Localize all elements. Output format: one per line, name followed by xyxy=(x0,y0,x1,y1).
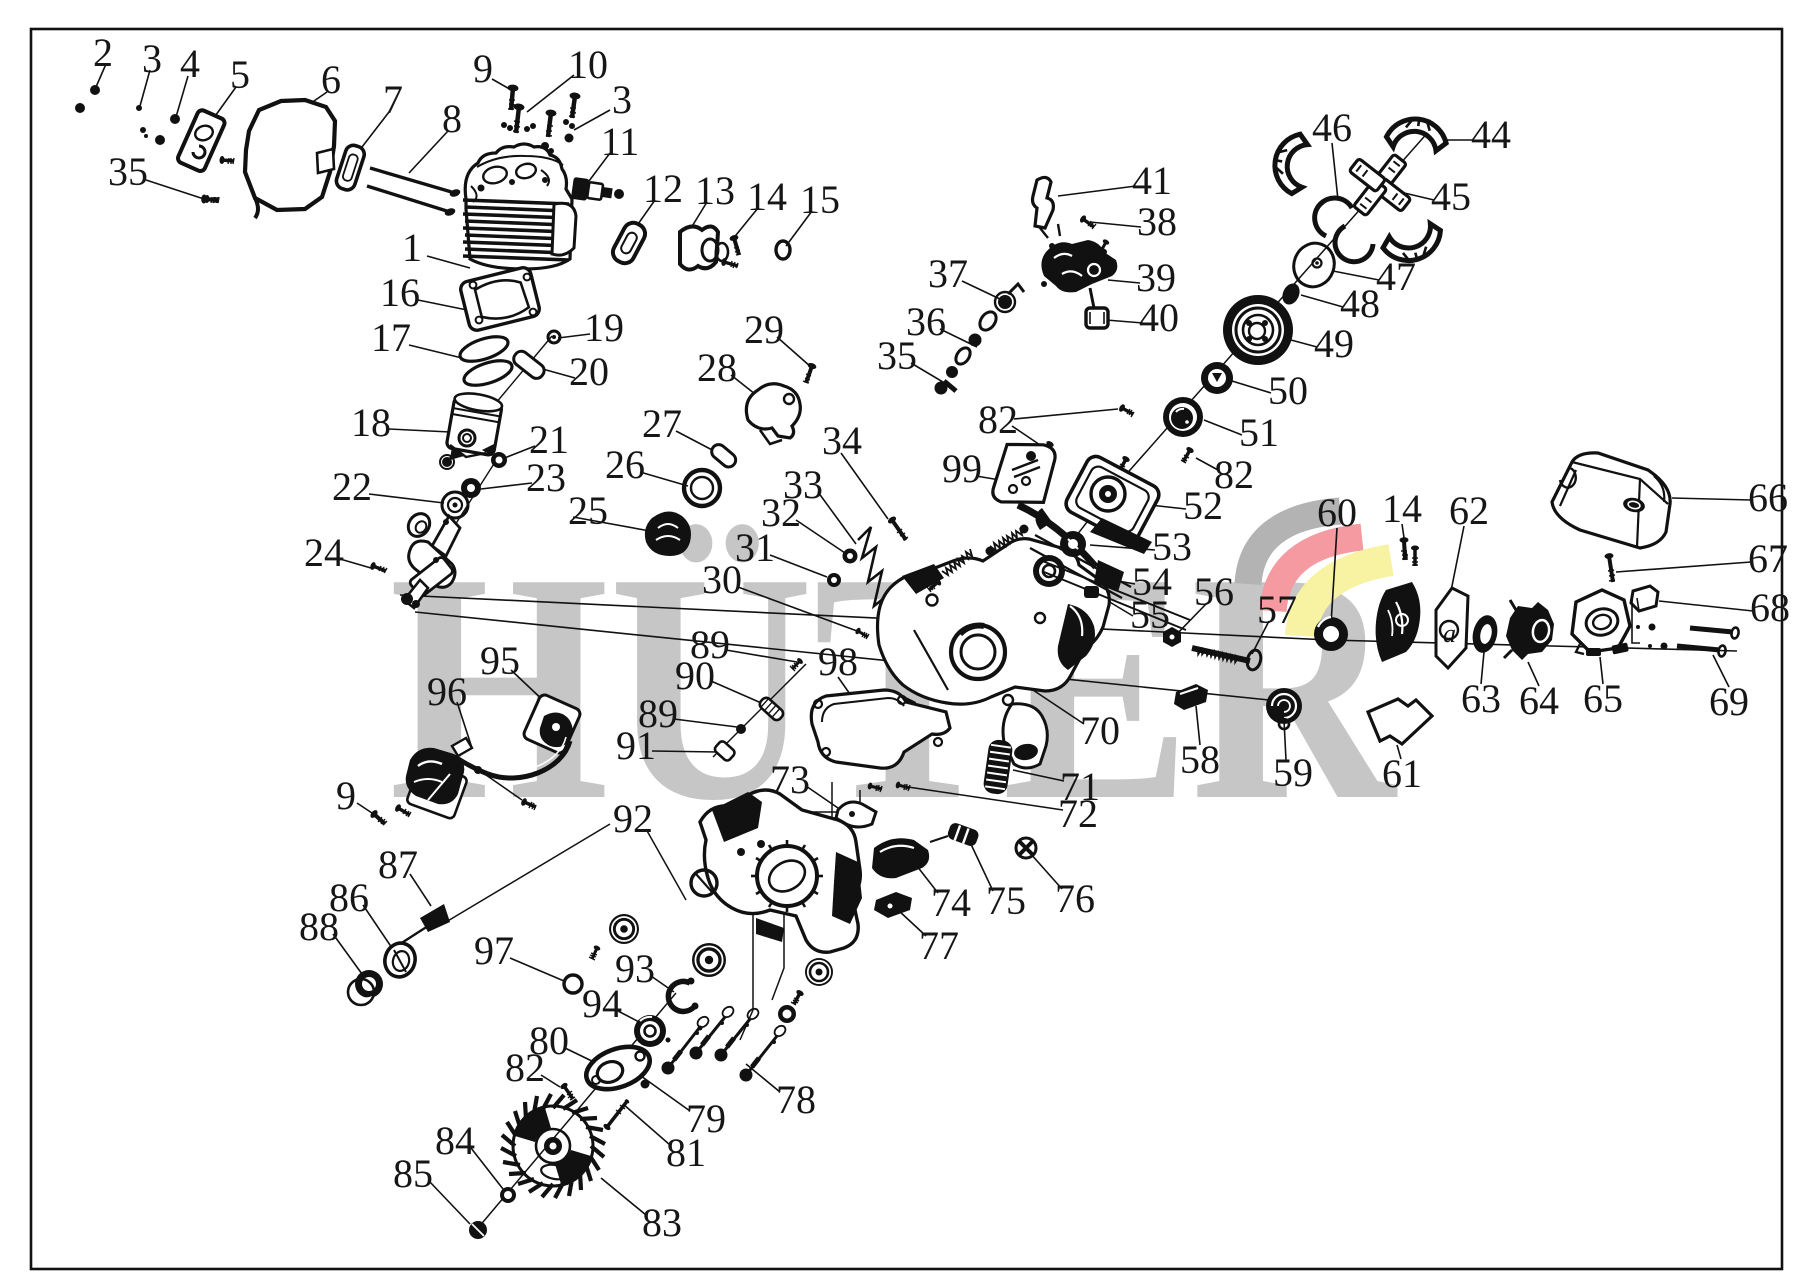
svg-text:48: 48 xyxy=(1340,281,1380,326)
svg-text:35: 35 xyxy=(877,333,917,378)
svg-text:29: 29 xyxy=(744,307,784,352)
svg-text:27: 27 xyxy=(642,401,682,446)
svg-text:25: 25 xyxy=(568,488,608,533)
svg-text:1: 1 xyxy=(402,225,422,270)
svg-text:38: 38 xyxy=(1137,199,1177,244)
svg-text:44: 44 xyxy=(1471,112,1511,157)
svg-text:3: 3 xyxy=(142,36,162,81)
svg-text:72: 72 xyxy=(1058,791,1098,836)
svg-text:84: 84 xyxy=(435,1118,475,1163)
svg-text:95: 95 xyxy=(480,638,520,683)
svg-text:87: 87 xyxy=(378,842,418,887)
svg-text:4: 4 xyxy=(180,41,200,86)
svg-text:75: 75 xyxy=(986,878,1026,923)
svg-text:8: 8 xyxy=(442,96,462,141)
svg-text:39: 39 xyxy=(1136,255,1176,300)
svg-text:49: 49 xyxy=(1314,321,1354,366)
svg-text:30: 30 xyxy=(702,557,742,602)
svg-text:92: 92 xyxy=(613,796,653,841)
svg-text:61: 61 xyxy=(1382,751,1422,796)
svg-text:66: 66 xyxy=(1748,475,1788,520)
svg-text:52: 52 xyxy=(1183,483,1223,528)
svg-text:73: 73 xyxy=(770,757,810,802)
svg-text:24: 24 xyxy=(304,530,344,575)
svg-text:9: 9 xyxy=(336,773,356,818)
svg-text:70: 70 xyxy=(1080,708,1120,753)
svg-text:82: 82 xyxy=(505,1045,545,1090)
svg-text:22: 22 xyxy=(332,464,372,509)
svg-text:18: 18 xyxy=(351,400,391,445)
svg-text:19: 19 xyxy=(584,305,624,350)
svg-text:35: 35 xyxy=(108,149,148,194)
svg-text:41: 41 xyxy=(1132,158,1172,203)
svg-text:7: 7 xyxy=(383,77,403,122)
svg-text:74: 74 xyxy=(931,880,971,925)
svg-text:10: 10 xyxy=(568,42,608,87)
svg-text:11: 11 xyxy=(601,119,640,164)
svg-text:46: 46 xyxy=(1312,105,1352,150)
svg-text:97: 97 xyxy=(474,928,514,973)
svg-text:94: 94 xyxy=(582,981,622,1026)
svg-text:69: 69 xyxy=(1709,679,1749,724)
svg-text:57: 57 xyxy=(1257,587,1297,632)
svg-text:14: 14 xyxy=(747,174,787,219)
svg-text:56: 56 xyxy=(1194,569,1234,614)
svg-text:91: 91 xyxy=(616,723,656,768)
svg-text:14: 14 xyxy=(1382,486,1422,531)
svg-text:37: 37 xyxy=(928,251,968,296)
svg-text:13: 13 xyxy=(695,168,735,213)
svg-text:5: 5 xyxy=(230,52,250,97)
svg-text:96: 96 xyxy=(427,669,467,714)
svg-text:77: 77 xyxy=(919,923,959,968)
svg-text:82: 82 xyxy=(978,397,1018,442)
svg-text:34: 34 xyxy=(822,418,862,463)
svg-text:65: 65 xyxy=(1583,676,1623,721)
svg-text:88: 88 xyxy=(299,904,339,949)
svg-text:6: 6 xyxy=(321,57,341,102)
svg-text:81: 81 xyxy=(666,1130,706,1175)
svg-text:55: 55 xyxy=(1130,592,1170,637)
svg-text:60: 60 xyxy=(1317,490,1357,535)
svg-text:99: 99 xyxy=(942,446,982,491)
svg-text:58: 58 xyxy=(1180,737,1220,782)
svg-text:59: 59 xyxy=(1273,750,1313,795)
svg-text:83: 83 xyxy=(642,1200,682,1245)
svg-text:16: 16 xyxy=(380,270,420,315)
svg-text:47: 47 xyxy=(1376,254,1416,299)
svg-text:26: 26 xyxy=(605,442,645,487)
svg-text:23: 23 xyxy=(526,455,566,500)
svg-text:3: 3 xyxy=(612,77,632,122)
svg-text:a: a xyxy=(1443,619,1456,648)
svg-text:78: 78 xyxy=(776,1077,816,1122)
svg-text:15: 15 xyxy=(800,177,840,222)
svg-text:9: 9 xyxy=(473,46,493,91)
svg-text:90: 90 xyxy=(675,653,715,698)
svg-text:62: 62 xyxy=(1449,488,1489,533)
svg-text:20: 20 xyxy=(569,349,609,394)
svg-text:98: 98 xyxy=(818,639,858,684)
svg-text:76: 76 xyxy=(1055,876,1095,921)
svg-text:68: 68 xyxy=(1750,585,1790,630)
svg-text:45: 45 xyxy=(1431,174,1471,219)
svg-text:51: 51 xyxy=(1239,410,1279,455)
svg-text:67: 67 xyxy=(1748,536,1788,581)
svg-text:12: 12 xyxy=(643,166,683,211)
svg-text:64: 64 xyxy=(1519,678,1559,723)
svg-text:28: 28 xyxy=(697,345,737,390)
svg-text:2: 2 xyxy=(93,30,113,75)
svg-text:17: 17 xyxy=(371,315,411,360)
svg-text:85: 85 xyxy=(393,1151,433,1196)
svg-text:50: 50 xyxy=(1268,368,1308,413)
svg-text:63: 63 xyxy=(1461,676,1501,721)
svg-text:40: 40 xyxy=(1139,295,1179,340)
